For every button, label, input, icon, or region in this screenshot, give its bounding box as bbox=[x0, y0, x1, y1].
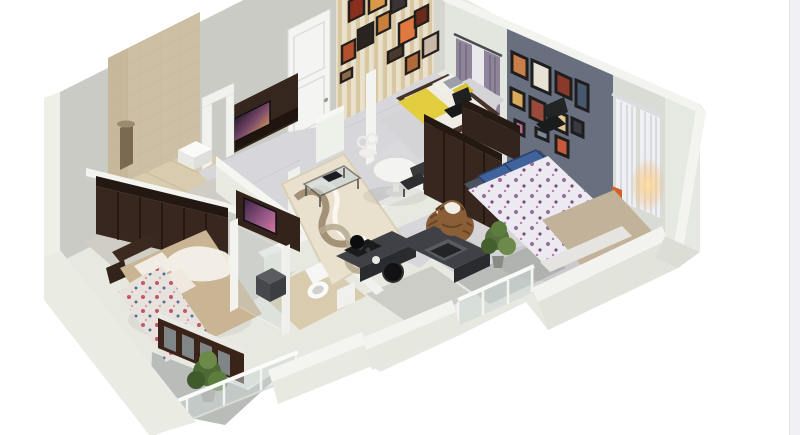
page bbox=[0, 0, 800, 435]
plant-pot bbox=[492, 256, 504, 268]
scrollbar-edge bbox=[789, 0, 790, 435]
stock-pot bbox=[383, 262, 403, 282]
wicker-basket bbox=[437, 200, 467, 236]
white-dish bbox=[372, 256, 380, 264]
scrollbar-track[interactable] bbox=[789, 0, 800, 435]
shower-head bbox=[117, 121, 135, 128]
hob-burner-2 bbox=[366, 248, 371, 253]
west-wall-cap bbox=[44, 92, 60, 258]
black-bowl bbox=[350, 235, 364, 249]
shower-column bbox=[120, 122, 133, 170]
floorplan-render bbox=[0, 0, 800, 435]
warm-lamp-glow bbox=[630, 158, 666, 212]
